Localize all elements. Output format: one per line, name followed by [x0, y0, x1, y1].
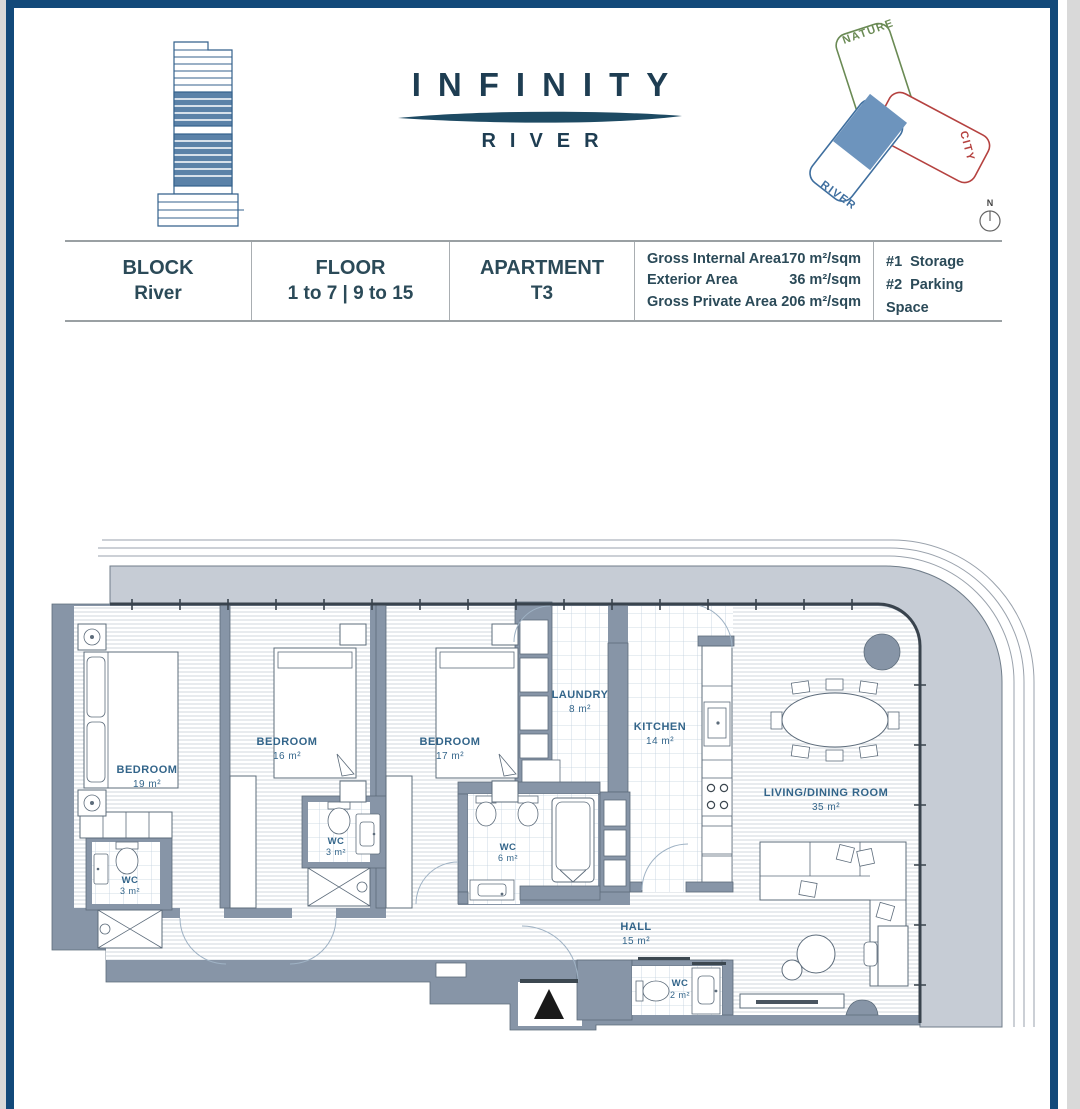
wall-kitchen-bottom — [630, 882, 642, 892]
room-area-living: 35 m² — [812, 802, 840, 813]
toilet-icon — [116, 842, 138, 874]
extra-row: #2Parking Space — [886, 274, 1002, 320]
room-area-wc6: 6 m² — [498, 853, 518, 863]
tower-building-icon — [146, 34, 256, 234]
area-row: Gross Private Area 206 m²/sqm — [647, 292, 861, 313]
room-label-hall: HALL — [620, 921, 651, 933]
area-row: Exterior Area 36 m²/sqm — [647, 270, 861, 291]
cooktop-icon — [702, 778, 732, 816]
toilet-icon — [328, 802, 350, 834]
bed-bedroom19 — [78, 624, 178, 816]
logo-block: INFINITY RIVER — [350, 66, 730, 153]
floor-plan: BEDROOM 19 m² BEDROOM 16 m² BEDROOM 17 m… — [40, 530, 1040, 1050]
info-cell-block: BLOCK River — [65, 242, 252, 320]
bidet-icon — [518, 796, 538, 826]
side-table — [782, 960, 802, 980]
wardrobe-bedroom17 — [386, 776, 412, 908]
brochure-page: INFINITY RIVER NATURE CITY RIVER — [0, 0, 1080, 1109]
room-area-bedroom17: 17 m² — [436, 751, 464, 762]
compass-icon: N — [980, 198, 1000, 231]
room-label-kitchen: KITCHEN — [634, 721, 686, 733]
wardrobe-bedroom16 — [230, 776, 256, 908]
room-label-wc3b: WC — [328, 836, 345, 847]
room-label-living: LIVING/DINING ROOM — [764, 787, 889, 799]
shower-icon — [98, 910, 162, 948]
wall-kitchen-bottom2 — [686, 882, 733, 892]
info-cell-areas: Gross Internal Area 170 m²/sqm Exterior … — [635, 242, 874, 320]
compass-n-label: N — [987, 198, 994, 208]
bed-bedroom17 — [436, 624, 518, 802]
coffee-table — [797, 935, 835, 973]
info-cell-extras: #1Storage #2Parking Space — [874, 242, 1002, 320]
shower-icon — [308, 868, 370, 906]
hall-wall-niche — [436, 963, 466, 977]
room-label-bedroom17: BEDROOM — [420, 736, 481, 748]
page-edge-right — [1067, 0, 1080, 1109]
room-area-hall: 15 m² — [622, 936, 650, 947]
room-area-wc3a: 3 m² — [120, 886, 140, 896]
wall-partition-1 — [220, 604, 230, 908]
wall-kitchen-laundry — [608, 643, 628, 792]
floor-value: 1 to 7 | 9 to 15 — [288, 283, 414, 305]
room-label-bedroom16: BEDROOM — [257, 736, 318, 748]
tv-bench — [740, 994, 844, 1008]
info-cell-apartment: APARTMENT T3 — [450, 242, 635, 320]
wc-2-room — [577, 957, 733, 1020]
site-footprint-diagram: NATURE CITY RIVER N — [798, 14, 1013, 239]
structural-column — [864, 634, 900, 670]
room-area-bedroom19: 19 m² — [133, 779, 161, 790]
info-cell-floor: FLOOR 1 to 7 | 9 to 15 — [252, 242, 450, 320]
block-value: River — [134, 283, 182, 305]
room-label-wc3a: WC — [122, 875, 139, 886]
apartment-label: APARTMENT — [480, 257, 604, 280]
room-area-kitchen: 14 m² — [646, 736, 674, 747]
kitchen-counter — [698, 636, 734, 886]
logo-subtitle: RIVER — [364, 130, 730, 153]
room-area-wc2: 2 m² — [670, 990, 690, 1000]
floor-hall-mid — [458, 905, 630, 960]
room-area-laundry: 8 m² — [569, 704, 591, 715]
sink-icon — [692, 968, 720, 1014]
room-label-wc6: WC — [500, 842, 517, 853]
room-label-laundry: LAUNDRY — [552, 689, 609, 701]
wc-6-room — [458, 782, 600, 904]
logo-title: INFINITY — [367, 66, 730, 104]
toilet-icon — [636, 981, 669, 1001]
block-label: BLOCK — [122, 257, 193, 280]
room-label-wc2: WC — [672, 978, 689, 989]
entrance-door-leaf — [520, 979, 578, 983]
bed-bedroom16 — [274, 624, 366, 802]
extra-row: #1Storage — [886, 251, 964, 274]
apartment-value: T3 — [531, 283, 553, 305]
wc6-cabinet-column — [600, 792, 630, 892]
floor-label: FLOOR — [316, 257, 386, 280]
room-area-wc3b: 3 m² — [326, 847, 346, 857]
area-row: Gross Internal Area 170 m²/sqm — [647, 249, 861, 270]
info-table: BLOCK River FLOOR 1 to 7 | 9 to 15 APART… — [65, 240, 1002, 322]
room-label-bedroom19: BEDROOM — [117, 764, 178, 776]
logo-swoosh-icon — [390, 110, 690, 126]
room-area-bedroom16: 16 m² — [273, 751, 301, 762]
